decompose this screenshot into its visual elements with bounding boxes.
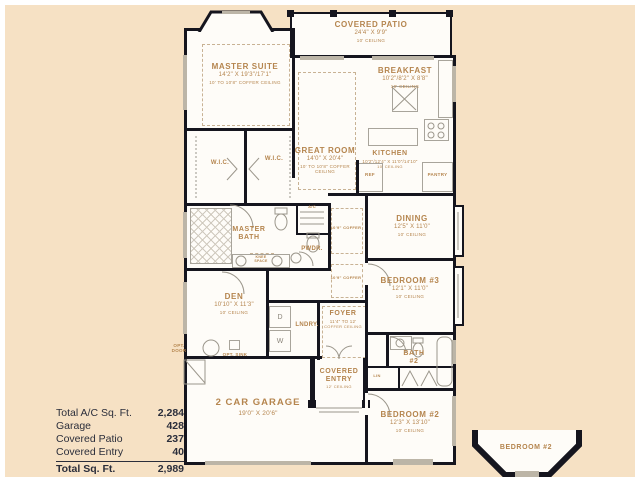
dryer-letter: D bbox=[277, 314, 282, 321]
lin-label: LIN bbox=[368, 374, 386, 379]
room-name: DINING bbox=[374, 214, 450, 223]
wall-segment bbox=[186, 268, 330, 271]
room-ceiling: 10' CEILING bbox=[200, 310, 268, 315]
wall-segment bbox=[368, 388, 456, 391]
wall-segment bbox=[368, 258, 456, 261]
patio-wall bbox=[290, 12, 292, 57]
washer-letter: W bbox=[277, 338, 284, 345]
room-label-bedroom-3: BEDROOM #3 12'1" X 11'0" 10' CEILING bbox=[368, 276, 452, 299]
room-dims: 10'10" X 11'3" bbox=[200, 302, 268, 309]
room-name: COVERED PATIO bbox=[296, 20, 446, 29]
room-dims: 12'5" X 11'0" bbox=[374, 224, 450, 231]
room-label-master-suite: MASTER SUITE 14'2" X 19'3"/17'1" 10' TO … bbox=[208, 62, 282, 85]
opt-sink-fixture bbox=[229, 340, 240, 350]
dining-window-bay bbox=[453, 205, 464, 257]
window bbox=[452, 66, 456, 102]
summary-total-value: 2,989 bbox=[158, 463, 184, 476]
room-label-kitchen: KITCHEN 10'2"/12'4" X 11'0"/14'10" 10' C… bbox=[340, 150, 440, 170]
room-name: 2 CAR GARAGE bbox=[200, 398, 316, 409]
washer: W bbox=[269, 330, 291, 352]
bay-detail-label: BEDROOM #2 bbox=[474, 444, 578, 452]
room-name: MASTER BATH bbox=[226, 226, 272, 242]
room-label-covered-patio: COVERED PATIO 24'4" X 9'9" 10' CEILING bbox=[296, 20, 446, 43]
room-label-master-bath: MASTER BATH bbox=[226, 226, 272, 242]
room-ceiling: 10' CEILING bbox=[362, 84, 448, 89]
room-name: BEDROOM #2 bbox=[368, 410, 452, 419]
hall-coffer-lower-outline bbox=[331, 264, 363, 298]
bath2-vanity bbox=[390, 336, 412, 350]
ac-label: A/C bbox=[298, 205, 326, 210]
lndry-label: LNDRY. bbox=[290, 322, 324, 329]
room-label-den: DEN 10'10" X 11'3" 10' CEILING bbox=[200, 292, 268, 315]
room-dims: 14'2" X 19'3"/17'1" bbox=[208, 72, 282, 79]
kitchen-island bbox=[368, 128, 418, 146]
room-ceiling: 10' CEILING bbox=[374, 232, 450, 237]
wall-segment bbox=[368, 332, 456, 335]
room-name: BREAKFAST bbox=[362, 66, 448, 75]
summary-value: 428 bbox=[166, 420, 184, 433]
room-label-bath-2: BATH #2 bbox=[398, 350, 430, 366]
wall-segment bbox=[296, 233, 330, 235]
wall-segment bbox=[292, 28, 295, 58]
bedroom3-window-bay bbox=[453, 266, 464, 326]
wall-segment bbox=[386, 332, 389, 368]
room-name: FOYER bbox=[323, 310, 363, 318]
wall-segment bbox=[266, 300, 320, 303]
window bbox=[183, 55, 187, 110]
area-summary-table: Total A/C Sq. Ft. 2,284 Garage 428 Cover… bbox=[56, 407, 184, 479]
room-dims: 12'3" X 13'10" bbox=[368, 420, 452, 427]
summary-row: Covered Patio 237 bbox=[56, 433, 184, 446]
wall-segment bbox=[368, 366, 456, 368]
room-label-foyer: FOYER 11'4" TO 12' COFFER CEILING bbox=[323, 310, 363, 330]
room-label-breakfast: BREAKFAST 10'2"/8'2" X 8'8" 10' CEILING bbox=[362, 66, 448, 89]
pantry-label: PANTRY bbox=[422, 172, 453, 177]
wall-segment bbox=[317, 300, 368, 303]
room-name: KITCHEN bbox=[340, 150, 440, 158]
summary-label: Covered Entry bbox=[56, 446, 123, 459]
patio-wall bbox=[450, 12, 452, 57]
room-label-covered-entry: COVERED ENTRY 12' CEILING bbox=[313, 368, 365, 390]
knee-space-label: KNEE SPACE bbox=[249, 255, 273, 263]
breakfast-door bbox=[372, 56, 434, 60]
kitchen-range bbox=[424, 119, 449, 141]
patio-sliding-door bbox=[300, 56, 344, 60]
summary-value: 2,284 bbox=[158, 407, 184, 420]
wall-segment bbox=[184, 28, 295, 31]
room-name: MASTER SUITE bbox=[208, 62, 282, 71]
page-margin bbox=[635, 0, 640, 480]
room-ceiling: COFFER CEILING bbox=[323, 325, 363, 330]
room-dims: 24'4" X 9'9" bbox=[296, 30, 446, 37]
wall-segment bbox=[328, 203, 331, 271]
bedroom2-bay-detail bbox=[466, 430, 588, 480]
hall-coffer-lower-label: 10'9" COFFER bbox=[330, 276, 362, 281]
ref-label: REF bbox=[357, 172, 383, 177]
room-name: DEN bbox=[200, 292, 268, 301]
room-ceiling: 10' TO 10'8" COFFER CEILING bbox=[208, 80, 282, 85]
wall-segment bbox=[328, 193, 456, 196]
pwdr-label: PWDR. bbox=[296, 246, 328, 253]
opt-sink-label: OPT. SINK bbox=[222, 352, 248, 357]
hall-coffer-upper-outline bbox=[331, 208, 363, 254]
room-label-garage: 2 CAR GARAGE 19'0" X 20'6" bbox=[200, 398, 316, 417]
wall-segment bbox=[317, 300, 320, 360]
summary-row: Total A/C Sq. Ft. 2,284 bbox=[56, 407, 184, 420]
window bbox=[452, 396, 456, 446]
summary-label: Covered Patio bbox=[56, 433, 123, 446]
patio-pillar bbox=[389, 10, 396, 17]
page-margin bbox=[0, 0, 5, 480]
wall-segment bbox=[398, 366, 400, 388]
window bbox=[183, 282, 187, 334]
room-ceiling: 10' CEILING bbox=[340, 165, 440, 170]
window bbox=[452, 340, 456, 364]
page-margin bbox=[0, 0, 640, 5]
summary-row: Covered Entry 40 bbox=[56, 446, 184, 459]
bedroom2-bay-window bbox=[393, 459, 433, 465]
wall-segment bbox=[186, 128, 295, 131]
floorplan-sheet: D W bbox=[0, 0, 640, 480]
wall-segment bbox=[244, 128, 247, 205]
window bbox=[183, 212, 187, 258]
summary-label: Total A/C Sq. Ft. bbox=[56, 407, 132, 420]
room-ceiling: 10' CEILING bbox=[368, 428, 452, 433]
wall-segment bbox=[186, 356, 322, 359]
room-dims: 19'0" X 20'6" bbox=[200, 410, 316, 417]
room-name: BEDROOM #3 bbox=[368, 276, 452, 285]
room-dims: 12'1" X 11'0" bbox=[368, 286, 452, 293]
door-opening bbox=[292, 178, 295, 203]
summary-value: 40 bbox=[172, 446, 184, 459]
opt-door-label: OPT. DOOR bbox=[166, 343, 192, 354]
patio-wall bbox=[290, 12, 452, 14]
breakfast-table bbox=[392, 86, 418, 112]
summary-value: 237 bbox=[166, 433, 184, 446]
room-label-dining: DINING 12'5" X 11'0" 10' CEILING bbox=[374, 214, 450, 237]
room-name: BATH #2 bbox=[398, 350, 430, 366]
room-ceiling: 10' CEILING bbox=[296, 38, 446, 43]
room-name: COVERED ENTRY bbox=[313, 368, 365, 384]
wic-left-label: W.I.C. bbox=[202, 160, 238, 167]
garage-door-opening bbox=[205, 461, 311, 465]
hall-coffer-upper-label: 10'9" COFFER bbox=[330, 226, 362, 231]
summary-label: Garage bbox=[56, 420, 91, 433]
patio-pillar bbox=[446, 10, 453, 17]
room-ceiling: 10' CEILING bbox=[368, 294, 452, 299]
dryer: D bbox=[269, 306, 291, 328]
room-ceiling: 12' CEILING bbox=[313, 385, 365, 390]
summary-row: Garage 428 bbox=[56, 420, 184, 433]
summary-total-label: Total Sq. Ft. bbox=[56, 463, 115, 476]
wic-right-label: W.I.C. bbox=[256, 156, 292, 163]
patio-pillar bbox=[287, 10, 294, 17]
room-dims: 10'2"/8'2" X 8'8" bbox=[362, 76, 448, 83]
room-label-bedroom-2: BEDROOM #2 12'3" X 13'10" 10' CEILING bbox=[368, 410, 452, 433]
patio-pillar bbox=[330, 10, 337, 17]
